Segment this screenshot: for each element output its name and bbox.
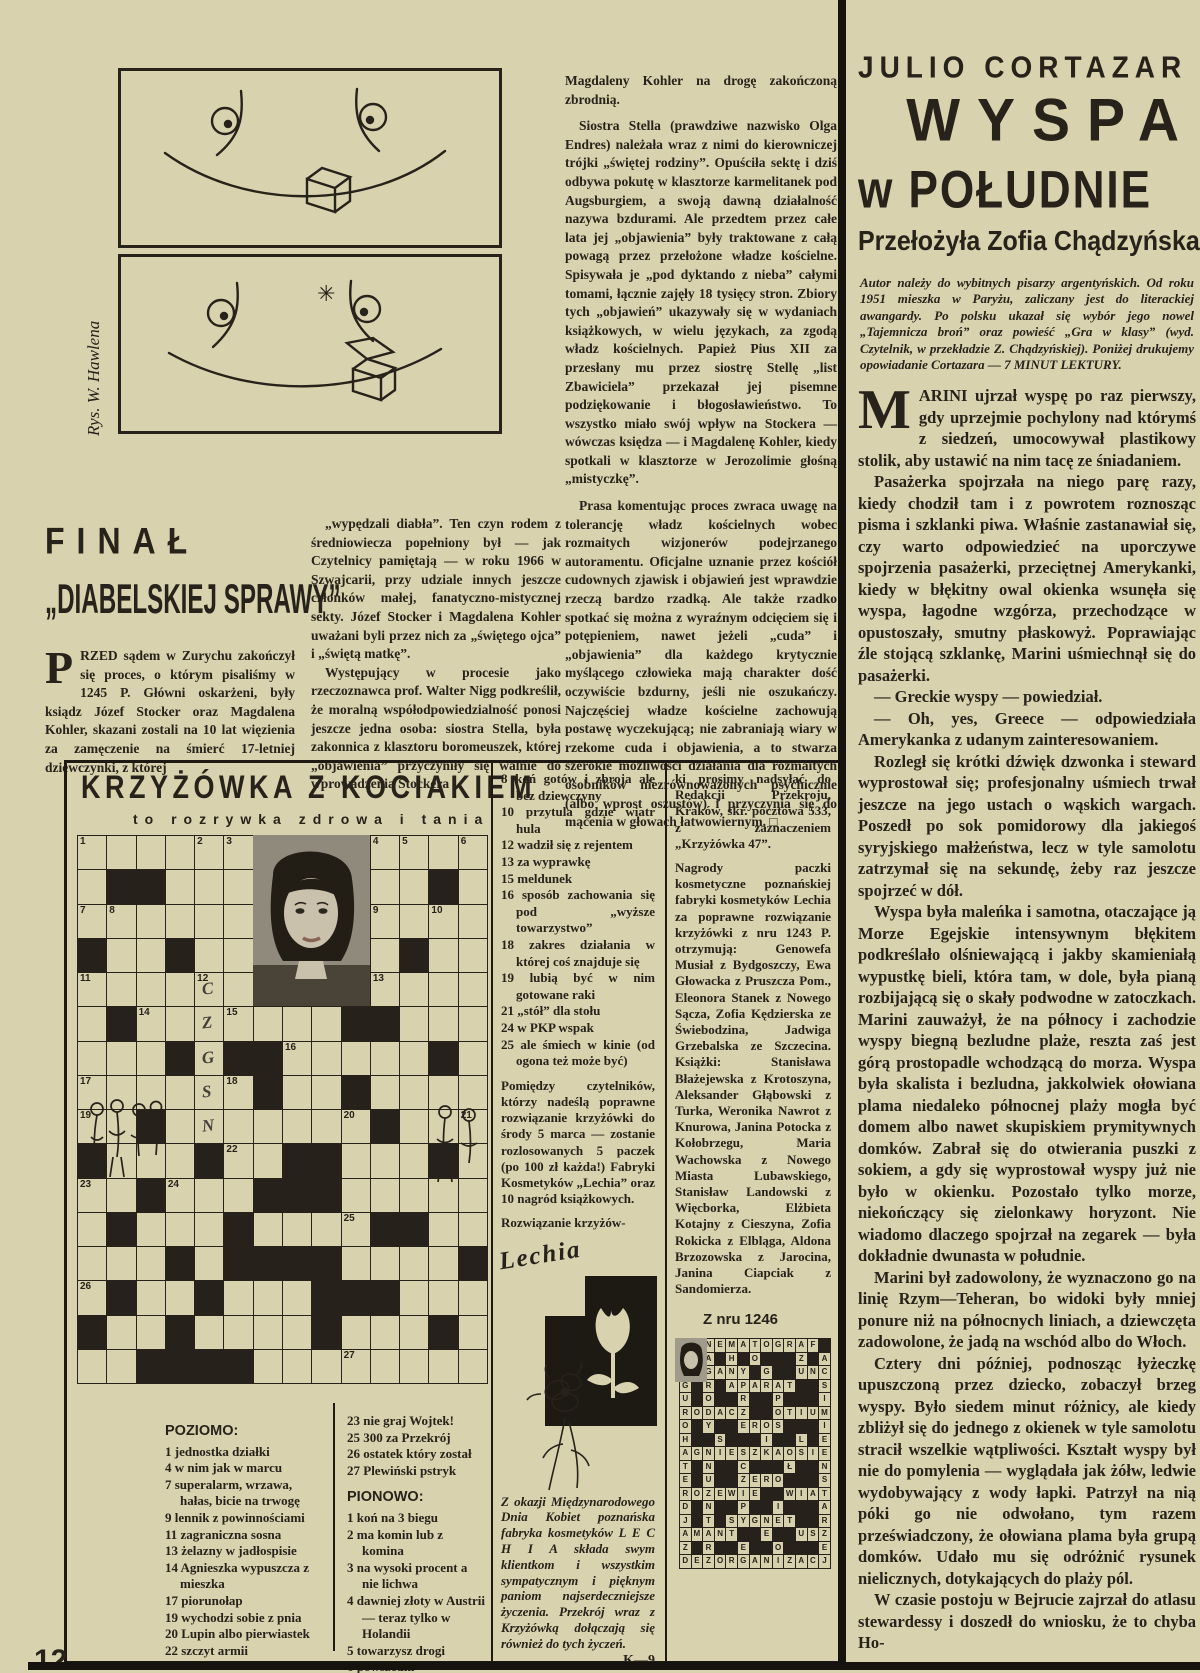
- grid-cell: [311, 1006, 341, 1041]
- grid-cell-black: [341, 1006, 371, 1041]
- grid-cell: [311, 1041, 341, 1076]
- pencil-letter: N: [201, 1115, 215, 1136]
- solution-cell-black: [818, 1338, 831, 1353]
- pencil-letter: S: [201, 1081, 213, 1102]
- list-item: Marini był zadowolony, że wyznaczono go …: [858, 1267, 1196, 1353]
- grid-cell: [399, 1315, 429, 1350]
- grid-cell: [311, 1109, 341, 1144]
- right-article: JULIO CORTAZAR WYSPA w POŁUDNIE Przełoży…: [858, 50, 1196, 1654]
- grid-cell: [282, 1349, 312, 1384]
- grid-cell: [428, 1212, 458, 1247]
- crossword-subtitle: to rozrywka zdrowa i tania: [133, 811, 489, 827]
- grid-cell: [399, 1349, 429, 1384]
- grid-cell: [399, 1246, 429, 1281]
- grid-cell: [370, 869, 400, 904]
- grid-cell-black: [399, 1212, 429, 1247]
- grid-cell: 2: [194, 835, 224, 870]
- solution-cell-letter: J: [818, 1554, 831, 1569]
- story-first-paragraph: MARINI ujrzał wyspę po raz pierwszy, gdy…: [858, 385, 1196, 471]
- grid-cell: [428, 1280, 458, 1315]
- grid-cell: [458, 869, 488, 904]
- grid-cell: [282, 1315, 312, 1350]
- lechia-greeting-text: Z okazji Międzynarodowego Dnia Kobiet po…: [501, 1494, 655, 1652]
- grid-cell-black: [165, 938, 195, 973]
- grid-cell-black: [223, 1246, 253, 1281]
- list-item: 1 jednostka działki: [165, 1444, 323, 1461]
- grid-cell: [458, 1349, 488, 1384]
- grid-cell-black: [282, 1246, 312, 1281]
- cartoon-drawing-open-box: ✳: [121, 257, 499, 425]
- crowd-doodle-right: [425, 1101, 487, 1185]
- grid-cell: [370, 1143, 400, 1178]
- cartoon-credit: Rys. W. Hawlena: [84, 276, 104, 436]
- grid-cell: 22: [223, 1143, 253, 1178]
- solution-lead: Rozwiązanie krzyżów-: [501, 1215, 655, 1231]
- flower-illustration: [519, 1360, 611, 1492]
- clue-number: 25: [344, 1213, 355, 1224]
- list-item: 15 meldunek: [501, 871, 655, 888]
- grid-cell: [282, 1109, 312, 1144]
- solution-cell-letter: I: [818, 1392, 831, 1407]
- mailing-paragraph: ki prosimy nadsyłać do Redakcji Przekroj…: [675, 771, 831, 852]
- grid-cell: [370, 1178, 400, 1213]
- drop-cap: P: [45, 649, 73, 687]
- grid-cell: 9: [370, 904, 400, 939]
- grid-cell: 16: [282, 1041, 312, 1076]
- grid-cell: [253, 1109, 283, 1144]
- clue-number: 2: [197, 836, 203, 847]
- list-item: 14 Agnieszka wypuszcza z mieszka: [165, 1560, 323, 1593]
- pionowo-label: PIONOWO:: [347, 1489, 485, 1506]
- list-item: — Oh, yes, Greece — odpowiedziała Ameryk…: [858, 708, 1196, 751]
- pencil-letter: G: [201, 1047, 215, 1068]
- grid-cell-black: [311, 1178, 341, 1213]
- cartoon-panel-2: ✳: [118, 254, 502, 434]
- list-item: 22 szczyt armii: [165, 1643, 323, 1660]
- crossword-right-column: ki prosimy nadsyłać do Redakcji Przekroj…: [675, 771, 831, 1574]
- clue-number: 16: [285, 1042, 296, 1053]
- grid-cell: [136, 1315, 166, 1350]
- grid-cell-black: [136, 1349, 166, 1384]
- bottom-rule: [28, 1662, 1200, 1670]
- grid-cell: [106, 972, 136, 1007]
- grid-cell: [223, 904, 253, 939]
- grid-cell: [136, 1246, 166, 1281]
- grid-cell: [428, 1349, 458, 1384]
- grid-cell: 25: [341, 1212, 371, 1247]
- divider: [491, 763, 493, 1661]
- solution-cell-letter: N: [818, 1460, 831, 1475]
- grid-cell: N: [194, 1109, 224, 1144]
- grid-cell: [253, 1143, 283, 1178]
- grid-cell: [165, 1109, 195, 1144]
- divider: [665, 763, 667, 1661]
- lechia-script-text: Lechia: [498, 1241, 582, 1270]
- grid-cell-black: [370, 1212, 400, 1247]
- grid-cell: [399, 1280, 429, 1315]
- solution-cell-letter: Z: [818, 1527, 831, 1542]
- crossword-title: KRZYŻÓWKA Z KOCIAKIEM: [81, 769, 536, 806]
- clues-column-b: 23 nie graj Wojtek!25 300 za Przekrój26 …: [347, 1413, 485, 1673]
- grid-cell-black: [282, 1178, 312, 1213]
- grid-cell: [282, 1006, 312, 1041]
- solution-photo: [675, 1338, 707, 1382]
- clue-number: 15: [226, 1007, 237, 1018]
- grid-cell: [194, 1178, 224, 1213]
- clue-number: 27: [344, 1350, 355, 1361]
- column-divider: [838, 0, 846, 1664]
- grid-cell-black: [253, 1178, 283, 1213]
- grid-cell: [223, 1315, 253, 1350]
- list-item: 21 „stół” dla stołu: [501, 1003, 655, 1020]
- clue-number: 1: [80, 836, 86, 847]
- grid-cell: [165, 1143, 195, 1178]
- solution-grid: KINEMATOGRAFAAHOZAWAGANYGUNCGRAPARATSUOR…: [675, 1338, 831, 1574]
- clue-number: 4: [373, 836, 379, 847]
- list-item: 2 ma komin lub z komina: [347, 1527, 485, 1560]
- grid-cell: [136, 938, 166, 973]
- pionowo-clues: 1 koń na 3 biegu2 ma komin lub z komina3…: [347, 1510, 485, 1673]
- solution-cell-letter: E: [818, 1433, 831, 1448]
- list-item: 10 przytula gdzie wiatr hula: [501, 804, 655, 837]
- grid-cell: [223, 1109, 253, 1144]
- grid-cell: [253, 1280, 283, 1315]
- list-item: 5 towarzysz drogi: [347, 1643, 485, 1660]
- clue-number: 11: [80, 973, 91, 984]
- grid-cell: [253, 1006, 283, 1041]
- left-article-title-2: „DIABELSKIEJ SPRAWY”: [45, 575, 240, 624]
- clue-number: 5: [402, 836, 408, 847]
- story-title-line2: w POŁUDNIE: [858, 158, 1182, 220]
- grid-cell: 8: [106, 904, 136, 939]
- grid-cell: [136, 972, 166, 1007]
- clue-number: 24: [168, 1179, 179, 1190]
- clue-number: 14: [139, 1007, 150, 1018]
- grid-cell: [253, 1212, 283, 1247]
- list-item: Siostra Stella (prawdziwe nazwisko Olga …: [565, 117, 837, 489]
- grid-cell: 15: [223, 1006, 253, 1041]
- grid-cell: [77, 869, 107, 904]
- list-item: 17 piorunołap: [165, 1593, 323, 1610]
- grid-cell: [370, 1349, 400, 1384]
- grid-cell-black: [223, 1212, 253, 1247]
- grid-cell: 3: [223, 835, 253, 870]
- cartoon-panel-1: [118, 68, 502, 248]
- grid-cell: [458, 904, 488, 939]
- clue-number: 8: [109, 905, 115, 916]
- grid-cell: [165, 835, 195, 870]
- grid-cell: S: [194, 1075, 224, 1110]
- grid-cell: [106, 1041, 136, 1076]
- grid-cell-black: [223, 1041, 253, 1076]
- grid-cell: [399, 1041, 429, 1076]
- drop-cap: M: [858, 388, 911, 432]
- grid-cell-black: [194, 1280, 224, 1315]
- list-item: 26 ostatek który został: [347, 1446, 485, 1463]
- clue-number: 22: [226, 1144, 237, 1155]
- clue-number: 18: [226, 1076, 237, 1087]
- grid-cell-black: [370, 1280, 400, 1315]
- grid-cell: [223, 1280, 253, 1315]
- list-item: 4 w nim jak w marcu: [165, 1460, 323, 1477]
- grid-cell: [428, 972, 458, 1007]
- grid-cell: [194, 1315, 224, 1350]
- clue-number: 26: [80, 1281, 91, 1292]
- grid-cell: 4: [370, 835, 400, 870]
- winners-paragraph: Nagrody paczki kosmetyczne poznańskiej f…: [675, 860, 831, 1297]
- grid-cell: [165, 1006, 195, 1041]
- list-item: 1 koń na 3 biegu: [347, 1510, 485, 1527]
- left-article-col1: FINAŁ „DIABELSKIEJ SPRAWY” PRZED sądem w…: [45, 512, 295, 794]
- grid-cell-black: [165, 1041, 195, 1076]
- left-article-col2: „wypędzali diabła”. Ten czyn rodem z śre…: [311, 512, 561, 794]
- list-item: 23 nie graj Wojtek!: [347, 1413, 485, 1430]
- grid-cell: 12C: [194, 972, 224, 1007]
- grid-cell: [106, 1315, 136, 1350]
- grid-cell-black: [77, 1315, 107, 1350]
- grid-cell-black: [399, 938, 429, 973]
- grid-cell: [136, 835, 166, 870]
- grid-cell-black: [106, 1280, 136, 1315]
- solution-cell-letter: R: [818, 1514, 831, 1529]
- cartoon-drawing-closed-box: [121, 71, 499, 239]
- grid-cell: [399, 1006, 429, 1041]
- grid-cell: [282, 1280, 312, 1315]
- grid-cell: 5: [399, 835, 429, 870]
- grid-cell: [223, 869, 253, 904]
- solution-cell-letter: E: [818, 1541, 831, 1556]
- grid-cell: 1: [77, 835, 107, 870]
- clue-number: 17: [80, 1076, 91, 1087]
- grid-cell: [428, 1246, 458, 1281]
- list-item: 20 Lupin albo pierwiastek: [165, 1626, 323, 1643]
- poziomo-clues: 1 jednostka działki4 w nim jak w marcu7 …: [165, 1444, 323, 1660]
- grid-cell: [458, 972, 488, 1007]
- crossword-grid: 123456789101112C1314Z15G1617S1819N202122…: [77, 835, 487, 1383]
- grid-cell: G: [194, 1041, 224, 1076]
- grid-cell: [311, 1212, 341, 1247]
- clue-number: 7: [80, 905, 86, 916]
- list-item: 12 wadził się z rejentem: [501, 837, 655, 854]
- grid-cell: [106, 835, 136, 870]
- story-paragraphs: Pasażerka spojrzała na niego parę razy, …: [858, 471, 1196, 1654]
- list-item: Wyspa była maleńka i samotna, otaczające…: [858, 901, 1196, 1267]
- grid-cell: [311, 1349, 341, 1384]
- grid-cell: [458, 1212, 488, 1247]
- grid-cell: [399, 904, 429, 939]
- grid-cell: [370, 938, 400, 973]
- list-item: 11 zagraniczna sosna: [165, 1527, 323, 1544]
- grid-cell-black: [311, 1143, 341, 1178]
- list-item: — Greckie wyspy — powiedział.: [858, 686, 1196, 708]
- grid-cell: [194, 1212, 224, 1247]
- pencil-letter: C: [201, 978, 214, 999]
- list-item: 25 ale śmiech w kinie (od ogona też może…: [501, 1037, 655, 1070]
- grid-cell: [458, 1280, 488, 1315]
- grid-cell: Z: [194, 1006, 224, 1041]
- grid-cell-black: [77, 938, 107, 973]
- list-item: 27 Plewiński pstryk: [347, 1463, 485, 1480]
- list-item: Cztery dni później, podnosząc łyżeczkę u…: [858, 1353, 1196, 1590]
- grid-cell: 24: [165, 1178, 195, 1213]
- grid-cell: [77, 1006, 107, 1041]
- grid-cell: [223, 972, 253, 1007]
- grid-cell: [165, 904, 195, 939]
- grid-cell: [77, 1041, 107, 1076]
- grid-cell: 11: [77, 972, 107, 1007]
- grid-cell-black: [165, 1315, 195, 1350]
- grid-cell: 20: [341, 1109, 371, 1144]
- grid-cell-black: [370, 1109, 400, 1144]
- grid-cell-black: [194, 1143, 224, 1178]
- grid-cell-black: [311, 1315, 341, 1350]
- story-author: JULIO CORTAZAR: [858, 50, 1196, 85]
- from-issue-label: Z nru 1246: [703, 1312, 831, 1329]
- solution-cell-letter: S: [818, 1473, 831, 1488]
- list-item: 4 dawniej złoty w Austrii — teraz tylko …: [347, 1593, 485, 1643]
- grid-cell: [341, 1178, 371, 1213]
- grid-cell: 18: [223, 1075, 253, 1110]
- grid-cell: [136, 904, 166, 939]
- grid-cell: [253, 1349, 283, 1384]
- grid-cell: 13: [370, 972, 400, 1007]
- grid-cell: [253, 1315, 283, 1350]
- solution-cell-letter: M: [818, 1406, 831, 1421]
- list-item: W czasie postoju w Bejrucie zajrzał do a…: [858, 1589, 1196, 1654]
- grid-cell: [341, 1143, 371, 1178]
- clue-number: 13: [373, 973, 384, 984]
- grid-cell: [165, 1280, 195, 1315]
- grid-cell: [106, 1246, 136, 1281]
- grid-cell-black: [106, 1212, 136, 1247]
- grid-cell: [370, 1075, 400, 1110]
- grid-cell: [341, 1041, 371, 1076]
- grid-cell: [106, 938, 136, 973]
- colb-clues: 23 nie graj Wojtek!25 300 za Przekrój26 …: [347, 1413, 485, 1479]
- paragraph: Magdaleny Kohler na drogę zakończoną zbr…: [565, 72, 837, 109]
- grid-cell: [282, 1075, 312, 1110]
- grid-cell: [282, 1212, 312, 1247]
- grid-cell: [428, 835, 458, 870]
- grid-cell: [165, 1212, 195, 1247]
- grid-cell-black: [223, 1349, 253, 1384]
- grid-cell: [370, 1315, 400, 1350]
- grid-cell: [399, 972, 429, 1007]
- list-item: 18 zakres działania w której coś znajduj…: [501, 937, 655, 970]
- grid-cell: [165, 1075, 195, 1110]
- clue-number: 6: [461, 836, 467, 847]
- grid-cell-black: [106, 1006, 136, 1041]
- grid-cell-black: [341, 1280, 371, 1315]
- grid-cell-black: [458, 1246, 488, 1281]
- list-item: 19 wychodzi sobie z pnia: [165, 1610, 323, 1627]
- grid-cell: [194, 869, 224, 904]
- solution-cell-letter: S: [818, 1379, 831, 1394]
- grid-cell-black: [253, 1246, 283, 1281]
- grid-cell: 14: [136, 1006, 166, 1041]
- grid-cell-black: [106, 869, 136, 904]
- grid-cell-black: [311, 1280, 341, 1315]
- list-item: 16 sposób zachowania się pod „wyższe tow…: [501, 887, 655, 937]
- grid-cell-black: [253, 1075, 283, 1110]
- prize-paragraph: Pomiędzy czytelników, którzy nadeślą pop…: [501, 1078, 655, 1208]
- solution-cell-letter: A: [818, 1352, 831, 1367]
- list-item: Rozległ się krótki dźwięk dzwonka i stew…: [858, 751, 1196, 902]
- poziomo-label: POZIOMO:: [165, 1423, 323, 1440]
- newspaper-page: ✳ Rys. W. Hawlena FINAŁ „DIABELSKIEJ SPR…: [0, 0, 1200, 1673]
- grid-cell: 26: [77, 1280, 107, 1315]
- clue-number: 20: [344, 1110, 355, 1121]
- clue-number: 10: [431, 905, 442, 916]
- grid-cell: [136, 1212, 166, 1247]
- crossword-woman-photo: [253, 835, 370, 1006]
- grid-cell: [77, 1349, 107, 1384]
- grid-cell: [428, 1006, 458, 1041]
- solution-cell-letter: I: [818, 1419, 831, 1434]
- story-title-line1: WYSPA: [858, 86, 1196, 155]
- list-item: 25 300 za Przekrój: [347, 1430, 485, 1447]
- left-article-text-col1: PRZED sądem w Zurychu zakończył się proc…: [45, 647, 295, 777]
- cartoon-strip: ✳: [118, 68, 502, 440]
- grid-cell-black: [311, 1246, 341, 1281]
- middle-clues: 8 koń gotów i zbroja ale bez dziewczyny1…: [501, 771, 655, 1070]
- grid-cell-black: [428, 1315, 458, 1350]
- svg-text:✳: ✳: [317, 281, 335, 306]
- list-item: „wypędzali diabła”. Ten czyn rodem z śre…: [311, 515, 561, 664]
- grid-cell-black: [428, 869, 458, 904]
- grid-cell: [399, 869, 429, 904]
- grid-cell: [194, 904, 224, 939]
- grid-cell: [370, 1246, 400, 1281]
- middle-article-column: Magdaleny Kohler na drogę zakończoną zbr…: [565, 72, 837, 840]
- grid-cell: [311, 1075, 341, 1110]
- list-item: 19 lubią być w nim gotowane raki: [501, 970, 655, 1003]
- grid-cell: 7: [77, 904, 107, 939]
- middle-article-paragraphs: Siostra Stella (prawdziwe nazwisko Olga …: [565, 117, 837, 832]
- list-item: 24 w PKP wspak: [501, 1020, 655, 1037]
- grid-cell: 10: [428, 904, 458, 939]
- solution-cell-letter: T: [818, 1487, 831, 1502]
- grid-cell: [223, 1178, 253, 1213]
- poziomo-section: POZIOMO: 1 jednostka działki4 w nim jak …: [165, 1413, 323, 1659]
- list-item: 8 koń gotów i zbroja ale bez dziewczyny: [501, 771, 655, 804]
- grid-cell: [194, 938, 224, 973]
- grid-cell: [223, 938, 253, 973]
- grid-cell-black: [282, 1143, 312, 1178]
- crossword-box: KRZYŻÓWKA Z KOCIAKIEM to rozrywka zdrowa…: [64, 760, 844, 1664]
- divider: [333, 1403, 335, 1651]
- grid-cell-black: [341, 1075, 371, 1110]
- grid-cell: [77, 1212, 107, 1247]
- grid-cell: [194, 1246, 224, 1281]
- grid-cell: [458, 1006, 488, 1041]
- grid-cell-black: [194, 1349, 224, 1384]
- grid-cell: [458, 938, 488, 973]
- story-body: MARINI ujrzał wyspę po raz pierwszy, gdy…: [858, 385, 1196, 1654]
- crossword-middle-column: 8 koń gotów i zbroja ale bez dziewczyny1…: [501, 771, 655, 1670]
- grid-cell-black: [136, 869, 166, 904]
- solution-cell-letter: E: [818, 1446, 831, 1461]
- list-item: 7 superalarm, wrzawa, hałas, bicie na tr…: [165, 1477, 323, 1510]
- clue-number: 3: [226, 836, 232, 847]
- solution-cell-letter: C: [818, 1365, 831, 1380]
- grid-cell: [341, 1315, 371, 1350]
- list-item: Pasażerka spojrzała na niego parę razy, …: [858, 471, 1196, 686]
- story-translator: Przełożyła Zofia Chądzyńska: [858, 226, 1196, 258]
- pencil-letter: Z: [201, 1013, 213, 1034]
- story-intro: Autor należy do wybitnych pisarzy argent…: [858, 275, 1196, 373]
- grid-cell-black: [370, 1006, 400, 1041]
